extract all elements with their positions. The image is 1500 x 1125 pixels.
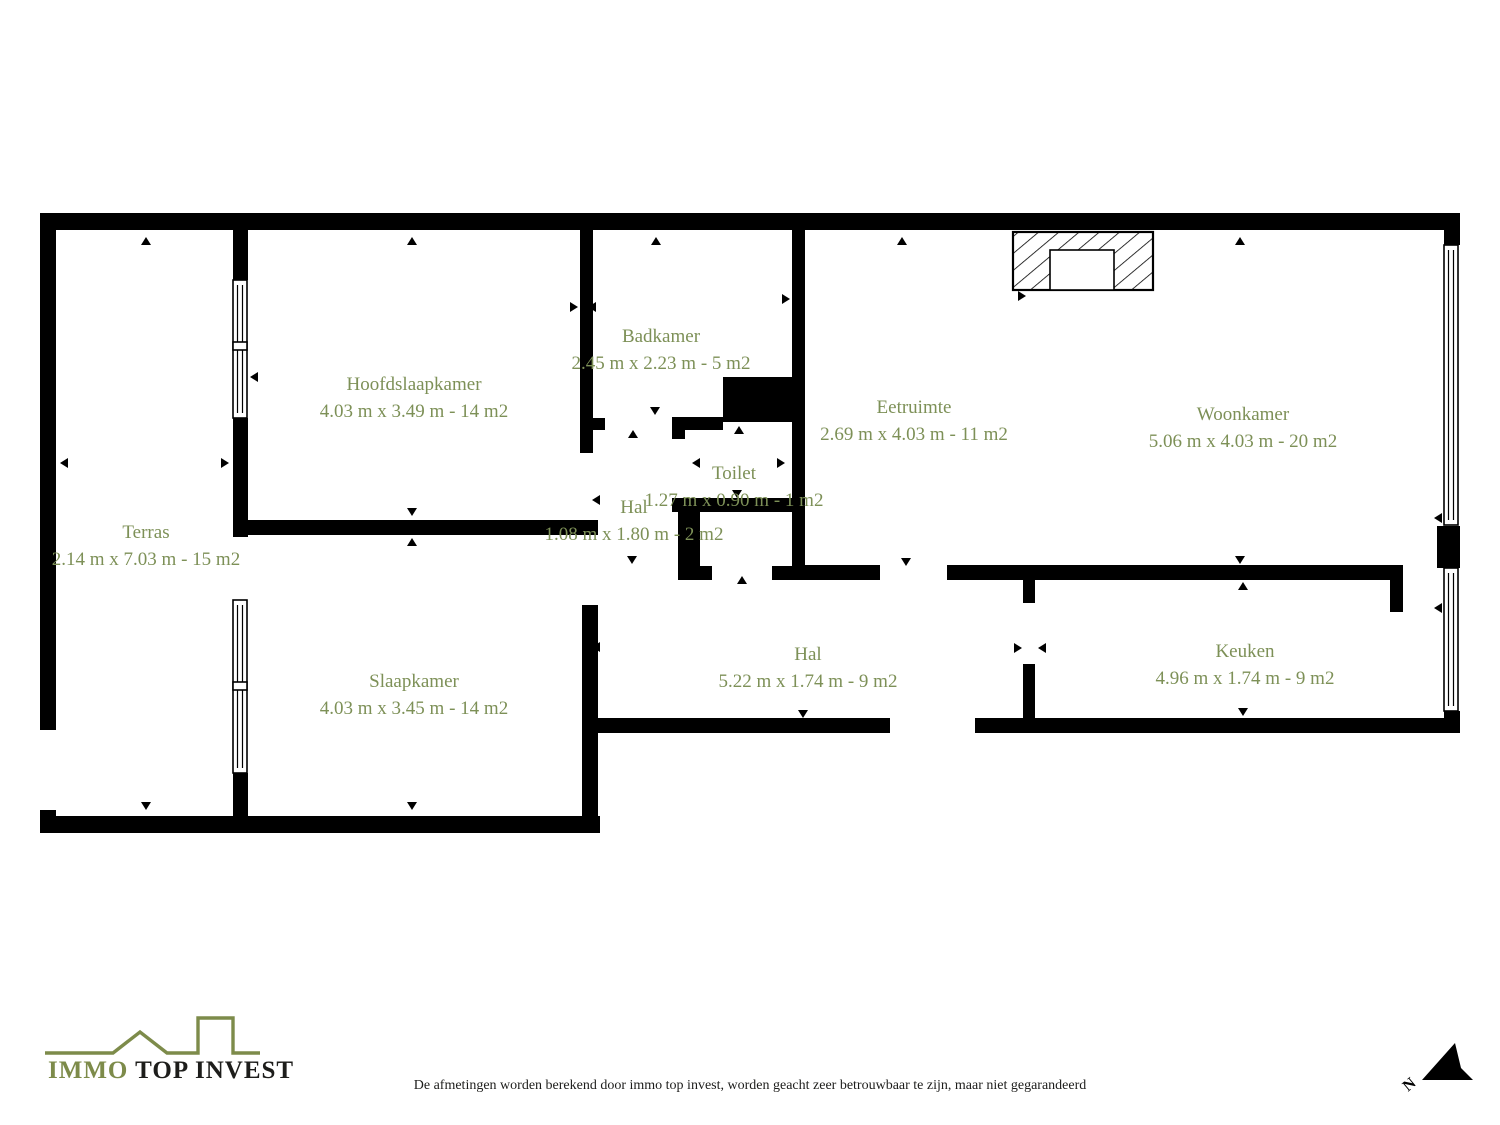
dimension-arrow-icon — [1014, 643, 1022, 653]
room-dims-woonkamer: 5.06 m x 4.03 m - 20 m2 — [1149, 431, 1337, 452]
dimension-arrow-icon — [141, 237, 151, 245]
dimension-arrow-icon — [901, 558, 911, 566]
room-dims-slaapkamer: 4.03 m x 3.45 m - 14 m2 — [320, 698, 508, 719]
room-dims-hal-klein: 1.08 m x 1.80 m - 2 m2 — [545, 524, 724, 545]
floorplan-page: Terras2.14 m x 7.03 m - 15 m2Hoofdslaapk… — [0, 0, 1500, 1125]
window-icon — [1444, 568, 1458, 711]
wall-segment — [580, 418, 605, 430]
dimension-arrow-icon — [407, 538, 417, 546]
dimension-arrow-icon — [628, 430, 638, 438]
window-icon — [233, 600, 247, 773]
room-label-terras: Terras — [122, 522, 169, 543]
wall-segment — [233, 773, 248, 816]
floor-plan: Terras2.14 m x 7.03 m - 15 m2Hoofdslaapk… — [0, 0, 1500, 1125]
wall-segment — [580, 430, 593, 453]
room-dims-hoofdslaapkamer: 4.03 m x 3.49 m - 14 m2 — [320, 401, 508, 422]
room-label-eetruimte: Eetruimte — [877, 397, 952, 418]
dimension-arrow-icon — [650, 407, 660, 415]
room-label-slaapkamer: Slaapkamer — [369, 671, 459, 692]
wall-segment — [792, 230, 805, 580]
dimension-arrow-icon — [777, 458, 785, 468]
wall-segment — [233, 213, 248, 280]
wall-segment — [40, 816, 600, 833]
disclaimer-text: De afmetingen worden berekend door immo … — [0, 1078, 1500, 1094]
dimension-arrow-icon — [734, 426, 744, 434]
room-label-hal-klein: Hal — [620, 497, 647, 518]
wall-segment — [580, 230, 593, 418]
room-label-woonkamer: Woonkamer — [1197, 404, 1290, 425]
wall-segment — [233, 418, 248, 537]
dimension-arrow-icon — [1038, 643, 1046, 653]
dimension-arrow-icon — [897, 237, 907, 245]
dimension-arrow-icon — [407, 508, 417, 516]
wall-segment — [40, 213, 56, 730]
wall-segment — [592, 718, 890, 733]
dimension-arrow-icon — [1434, 603, 1442, 613]
wall-segment — [1390, 580, 1403, 612]
room-dims-keuken: 4.96 m x 1.74 m - 9 m2 — [1156, 668, 1335, 689]
window-icon — [233, 280, 247, 418]
wall-segment — [803, 565, 880, 580]
wall-segment — [1444, 213, 1460, 245]
dimension-arrow-icon — [1018, 291, 1026, 301]
dimension-arrow-icon — [737, 576, 747, 584]
room-label-toilet: Toilet — [712, 463, 757, 484]
wall-segment — [1444, 711, 1460, 733]
dimension-arrow-icon — [1235, 556, 1245, 564]
dimension-arrow-icon — [250, 372, 258, 382]
dimension-arrow-icon — [407, 237, 417, 245]
wall-segment — [1023, 565, 1035, 603]
wall-segment — [40, 213, 1460, 230]
room-label-keuken: Keuken — [1215, 641, 1275, 662]
dimension-arrow-icon — [570, 302, 578, 312]
dimension-arrow-icon — [1238, 708, 1248, 716]
dimension-arrow-icon — [592, 495, 600, 505]
dimension-arrow-icon — [1235, 237, 1245, 245]
dimension-arrow-icon — [1434, 513, 1442, 523]
wall-segment — [1023, 664, 1035, 720]
dimension-arrow-icon — [407, 802, 417, 810]
dimension-arrow-icon — [141, 802, 151, 810]
wall-segment — [1035, 565, 1403, 580]
dimension-arrow-icon — [651, 237, 661, 245]
dimension-arrow-icon — [782, 294, 790, 304]
wall-segment — [248, 520, 593, 535]
room-dims-terras: 2.14 m x 7.03 m - 15 m2 — [52, 549, 240, 570]
wall-segment — [947, 565, 1035, 580]
wall-segment — [582, 605, 598, 833]
room-dims-badkamer: 2.45 m x 2.23 m - 5 m2 — [572, 353, 751, 374]
walls — [40, 213, 1460, 833]
room-dims-hal-groot: 5.22 m x 1.74 m - 9 m2 — [719, 671, 898, 692]
dimension-arrow-icon — [798, 710, 808, 718]
wall-segment — [672, 417, 685, 439]
wall-segment — [975, 718, 1460, 733]
wall-segment — [1437, 526, 1460, 568]
room-label-hoofdslaapkamer: Hoofdslaapkamer — [346, 374, 482, 395]
room-label-hal-groot: Hal — [794, 644, 821, 665]
wall-segment — [678, 566, 712, 580]
roofline-with-chimney-icon — [45, 1018, 260, 1053]
windows — [233, 245, 1458, 773]
window-icon — [1444, 245, 1458, 525]
wall-segment — [772, 566, 805, 580]
dimension-arrow-icon — [627, 556, 637, 564]
fireplace-hatched-icon — [1013, 232, 1153, 290]
room-dims-toilet: 1.27 m x 0.90 m - 1 m2 — [645, 490, 824, 511]
room-label-badkamer: Badkamer — [622, 326, 701, 347]
dimension-arrow-icon — [221, 458, 229, 468]
dimension-arrow-icon — [1238, 582, 1248, 590]
room-dims-eetruimte: 2.69 m x 4.03 m - 11 m2 — [820, 424, 1008, 445]
dimension-arrow-icon — [692, 458, 700, 468]
dimension-arrow-icon — [60, 458, 68, 468]
